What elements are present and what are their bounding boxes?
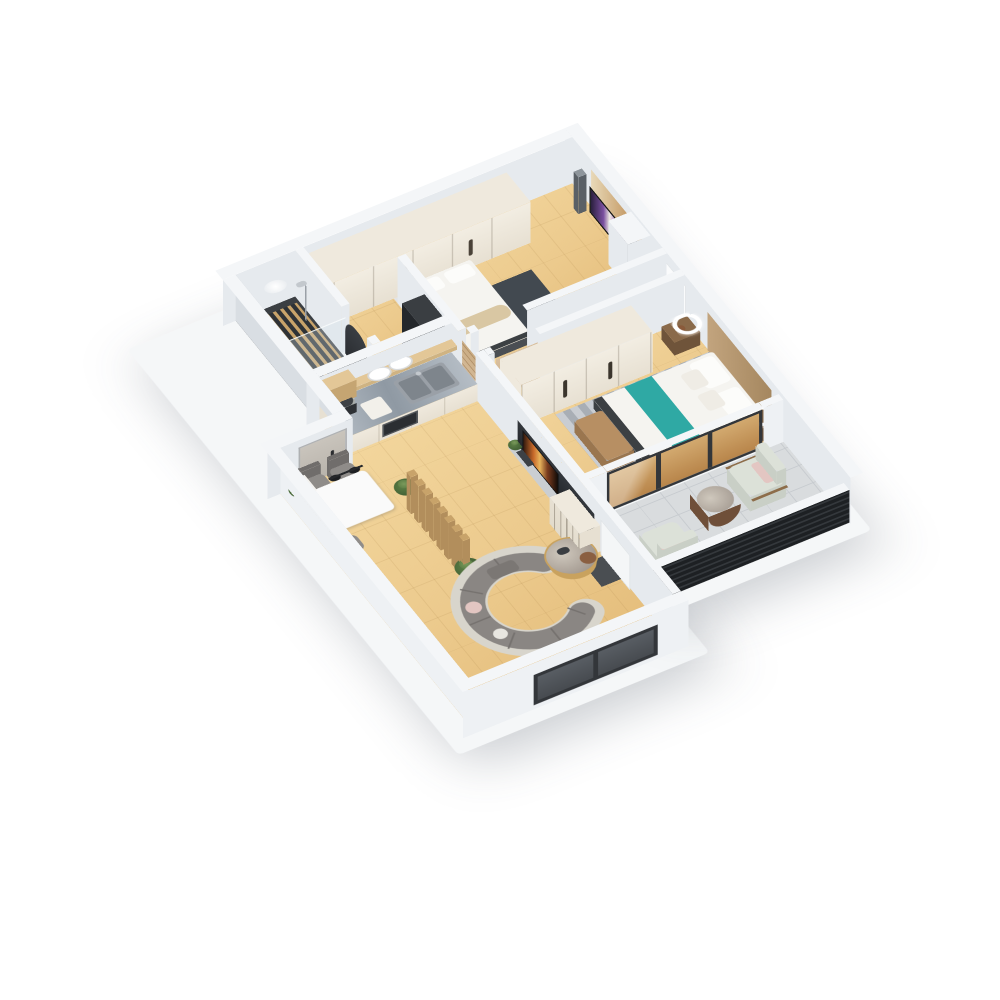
floor-plan [95,169,904,765]
living-window-pane-right [598,629,654,675]
wardrobe-handle-icon [608,361,612,380]
shower-column [305,284,307,322]
speaker-stand-1-south-face [578,174,586,214]
wardrobe-handle-icon [563,379,567,398]
living-window-pane-left [538,654,594,700]
apartment-render-stage [0,0,1000,1000]
wardrobe-handle-icon [469,239,473,256]
